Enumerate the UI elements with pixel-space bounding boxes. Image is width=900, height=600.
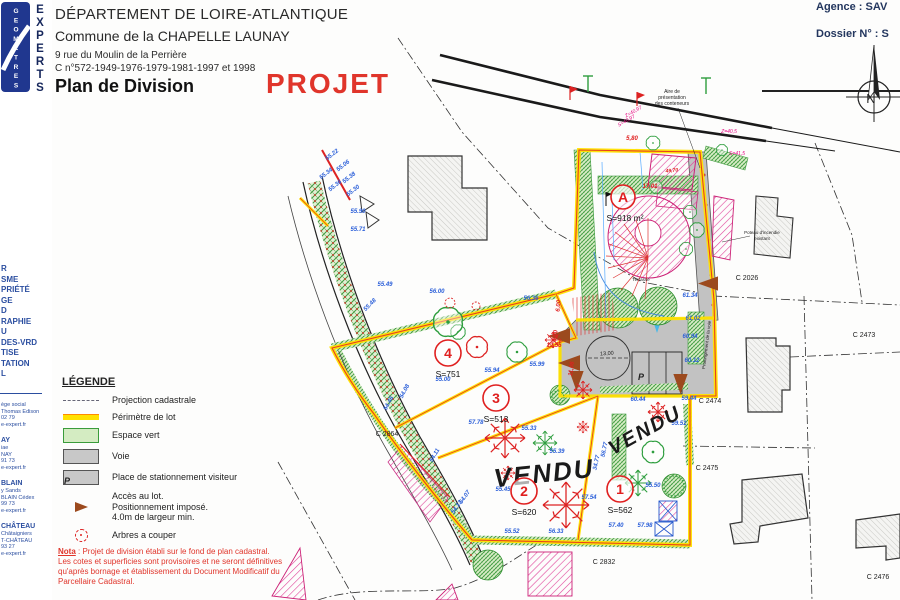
survey-code-label: S=41,5 xyxy=(729,151,745,157)
dashed-line-swatch xyxy=(63,400,99,401)
parcel-id-label: C 2476 xyxy=(867,574,890,581)
lot-3-area: S=513 xyxy=(484,414,509,424)
parcel-id-label: C 2026 xyxy=(736,275,759,282)
elevation-label: 55.90 xyxy=(350,209,366,215)
elevation-label: 55.50 xyxy=(645,483,661,489)
yellow-line-swatch xyxy=(63,414,99,420)
scanned-division-plan-page: GEOMETRES EXPERTS RSMEPRIÉTÉGEDRAPHIEUDE… xyxy=(0,0,900,600)
elevation-label: 60.12 xyxy=(684,358,700,364)
elevation-label: 55.71 xyxy=(350,227,366,233)
lot-A-area: S=918 m² xyxy=(606,213,643,223)
plan-annotation: 13,00 xyxy=(600,351,614,358)
elevation-label: 56.36 xyxy=(523,296,539,302)
nota-line1: : Projet de division établi sur le fond … xyxy=(76,547,270,556)
acces-line1: Accès au lot. xyxy=(112,491,164,501)
plan-annotation: Terrasse xyxy=(632,277,650,282)
elevation-label: 55.06 xyxy=(336,159,352,173)
access-arrow-swatch xyxy=(75,502,88,512)
elevation-label: 56.00 xyxy=(429,289,445,295)
legend-row-arbres: Arbres a couper xyxy=(62,529,314,542)
acces-line2: Positionnement imposé. xyxy=(112,502,208,512)
parcel-id-label: C 2864 xyxy=(376,431,399,438)
parcel-id-label: C 2473 xyxy=(853,332,876,339)
red-dimension-label: 5,80 xyxy=(626,136,638,142)
lot-1-number: 1 xyxy=(616,481,624,497)
survey-code-label: Z=40,5 xyxy=(720,129,737,135)
parcel-id-label: C 2832 xyxy=(593,559,616,566)
legend-row-perimetre: Périmètre de lot xyxy=(62,412,314,423)
elevation-label: 55.99 xyxy=(529,362,545,368)
elevation-label: 54.08 xyxy=(399,383,412,400)
red-dimension-label: 12,55 xyxy=(546,343,562,349)
north-letter: N xyxy=(866,91,875,106)
nota-label: Nota xyxy=(58,547,76,556)
nota-warning: Nota : Projet de division établi sur le … xyxy=(58,547,320,587)
elevation-label: 55.49 xyxy=(377,282,393,288)
lot-4-number: 4 xyxy=(444,345,452,361)
elevation-label: 55.94 xyxy=(484,368,500,374)
legend-row-espace-vert: Espace vert xyxy=(62,428,314,443)
red-dimension-label: 17,01 xyxy=(642,184,658,190)
legend-panel: LÉGENDE Projection cadastrale Périmètre … xyxy=(62,376,314,548)
small-crossed-boxes xyxy=(655,501,677,536)
elevation-label: 61.02 xyxy=(685,316,701,322)
north-arrow: N xyxy=(846,45,900,122)
vendu-handwriting: VENDU xyxy=(492,453,596,493)
elevation-label: 55.48 xyxy=(363,297,378,312)
legend-title: LÉGENDE xyxy=(62,376,314,388)
parcel-id-label: C 2475 xyxy=(696,465,719,472)
elevation-label: 54.11 xyxy=(429,447,442,463)
plan-annotation: Poteau d'incendie xyxy=(744,230,780,235)
legend-row-stationnement: P Place de stationnement visiteur xyxy=(62,470,314,485)
legend-row-projection: Projection cadastrale xyxy=(62,395,314,406)
elevation-label: 56.33 xyxy=(548,529,564,535)
parking-p-glyph: P xyxy=(64,476,70,486)
elevation-label: 55.39 xyxy=(549,449,565,455)
elevation-label: 55.52 xyxy=(504,529,520,535)
legend-row-acces: Accès au lot. Positionnement imposé. 4.0… xyxy=(62,491,314,523)
lot-4-area: S=751 xyxy=(436,369,461,379)
elevation-label: 60.94 xyxy=(682,334,698,340)
lot-2-area: S=620 xyxy=(512,507,537,517)
elevation-label: 57.40 xyxy=(608,523,624,529)
acces-line3: 4.0m de largeur min. xyxy=(112,512,195,522)
elevation-label: 55.38 xyxy=(342,171,358,185)
red-dimension-label: 6,00 xyxy=(556,299,563,312)
elevation-label: 55.22 xyxy=(325,148,341,162)
elevation-label: 55.33 xyxy=(521,426,537,432)
elevation-label: 54.07 xyxy=(458,489,472,505)
elevation-label: 61.34 xyxy=(682,293,698,299)
red-dimension-label: 4,00 xyxy=(552,329,559,343)
lot-1-area: S=562 xyxy=(608,505,633,515)
tree-to-cut-swatch xyxy=(75,529,88,542)
elevation-label: 57.98 xyxy=(637,523,653,529)
red-hatch-bank xyxy=(572,292,616,336)
plan-annotation: des conteneurs xyxy=(655,101,690,107)
green-area-swatch xyxy=(63,428,99,443)
nota-line4: Parcellaire Cadastral. xyxy=(58,577,134,586)
parking-swatch: P xyxy=(63,470,99,485)
plan-annotation: existant xyxy=(754,236,770,241)
road-swatch xyxy=(63,449,99,464)
elevation-label: 57.54 xyxy=(581,495,597,501)
lot-A-number: A xyxy=(618,189,628,205)
nota-line2: Les cotes et superficies sont provisoire… xyxy=(58,557,282,566)
lot-2-number: 2 xyxy=(520,483,528,499)
elevation-label: 60.44 xyxy=(630,397,646,403)
elevation-label: 57.78 xyxy=(468,420,484,426)
parcel-id-label: C 2474 xyxy=(699,398,722,405)
parking-p-label: P xyxy=(638,372,645,382)
nota-line3: qu'après bornage et établissement du Doc… xyxy=(58,567,280,576)
elevation-label: 55.30 xyxy=(346,184,362,198)
lot-3-number: 3 xyxy=(492,390,500,406)
legend-row-voie: Voie xyxy=(62,449,314,464)
elevation-label: 59.44 xyxy=(681,396,697,402)
